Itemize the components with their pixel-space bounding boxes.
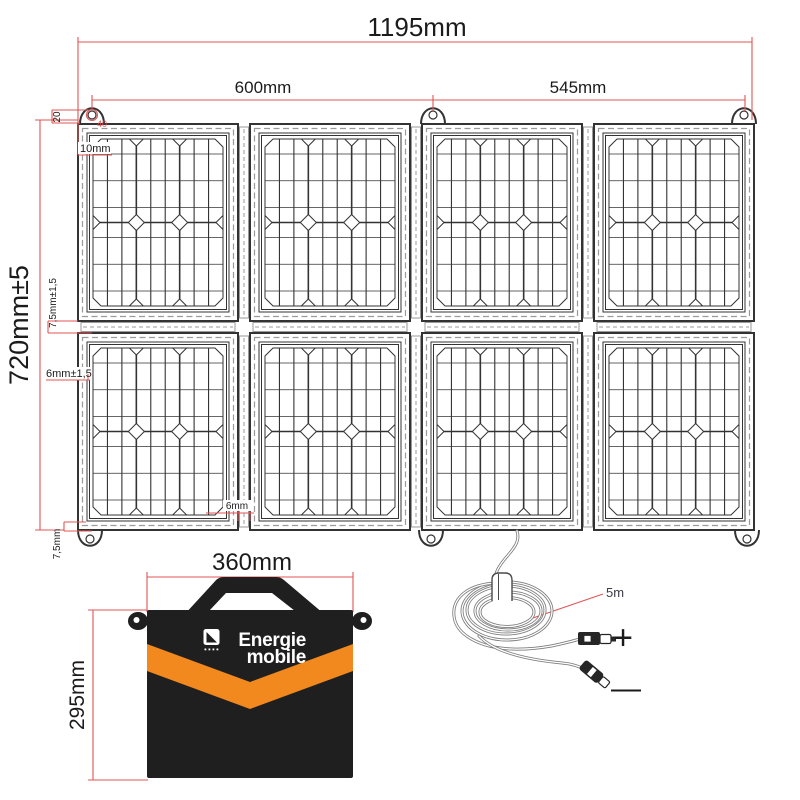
- negative-symbol: —: [611, 672, 641, 705]
- solar-panel-r1c4: [594, 124, 754, 321]
- dim-overall-height-label: 720mm±5: [4, 265, 34, 385]
- bag-ear-right: [352, 612, 372, 630]
- dim-left-section-line: [92, 95, 433, 111]
- solar-panel-r2c2: [250, 333, 410, 530]
- solar-panel-r2c4: [594, 333, 754, 530]
- solar-panel-r1c2: [250, 124, 410, 321]
- carry-bag: Energie mobile: [128, 578, 372, 778]
- bag-ear-left: [128, 612, 148, 630]
- dim-top-margin-label: 10mm: [80, 143, 111, 155]
- positive-connector: [578, 632, 616, 645]
- brand-name-bottom: mobile: [247, 647, 306, 668]
- negative-connector: [578, 659, 611, 689]
- dim-stitch-margin-label: 6mm±1,5: [46, 368, 92, 380]
- page: { "dims": { "overall_width": "1195mm", "…: [0, 0, 800, 800]
- positive-symbol: +: [613, 619, 633, 657]
- solar-panel-r1c3: [422, 124, 582, 321]
- dim-bag-height-line: [88, 610, 148, 780]
- dim-left-section-label: 600mm: [235, 78, 292, 97]
- solar-panel-technical-drawing: 1195mm 600mm 545mm 720mm±5 20 40 10mm 7,…: [0, 0, 800, 800]
- solar-panel-r2c1: [78, 333, 238, 530]
- dim-overall-width-label: 1195mm: [367, 12, 466, 42]
- dim-loop-height-label: 20: [52, 111, 63, 123]
- bag-handle: [189, 578, 319, 611]
- dim-right-section-line: [433, 95, 745, 111]
- dim-row-gap-label: 7,5mm±1,5: [48, 278, 59, 328]
- cable-strap: [492, 573, 512, 601]
- solar-panel-r2c3: [422, 333, 582, 530]
- dim-panel-gap-label: 6mm: [226, 501, 248, 512]
- dim-loop-hole-label: 40: [97, 119, 107, 129]
- solar-panel-array: [78, 124, 754, 530]
- dim-right-section-label: 545mm: [550, 78, 607, 97]
- cable-length-label: 5m: [606, 585, 624, 600]
- cable-assembly: 5m + —: [454, 531, 641, 705]
- dim-bottom-margin-label: 7,5mm: [52, 529, 63, 560]
- dim-bag-height-label: 295mm: [66, 660, 89, 730]
- dim-bag-width-label: 360mm: [212, 549, 292, 576]
